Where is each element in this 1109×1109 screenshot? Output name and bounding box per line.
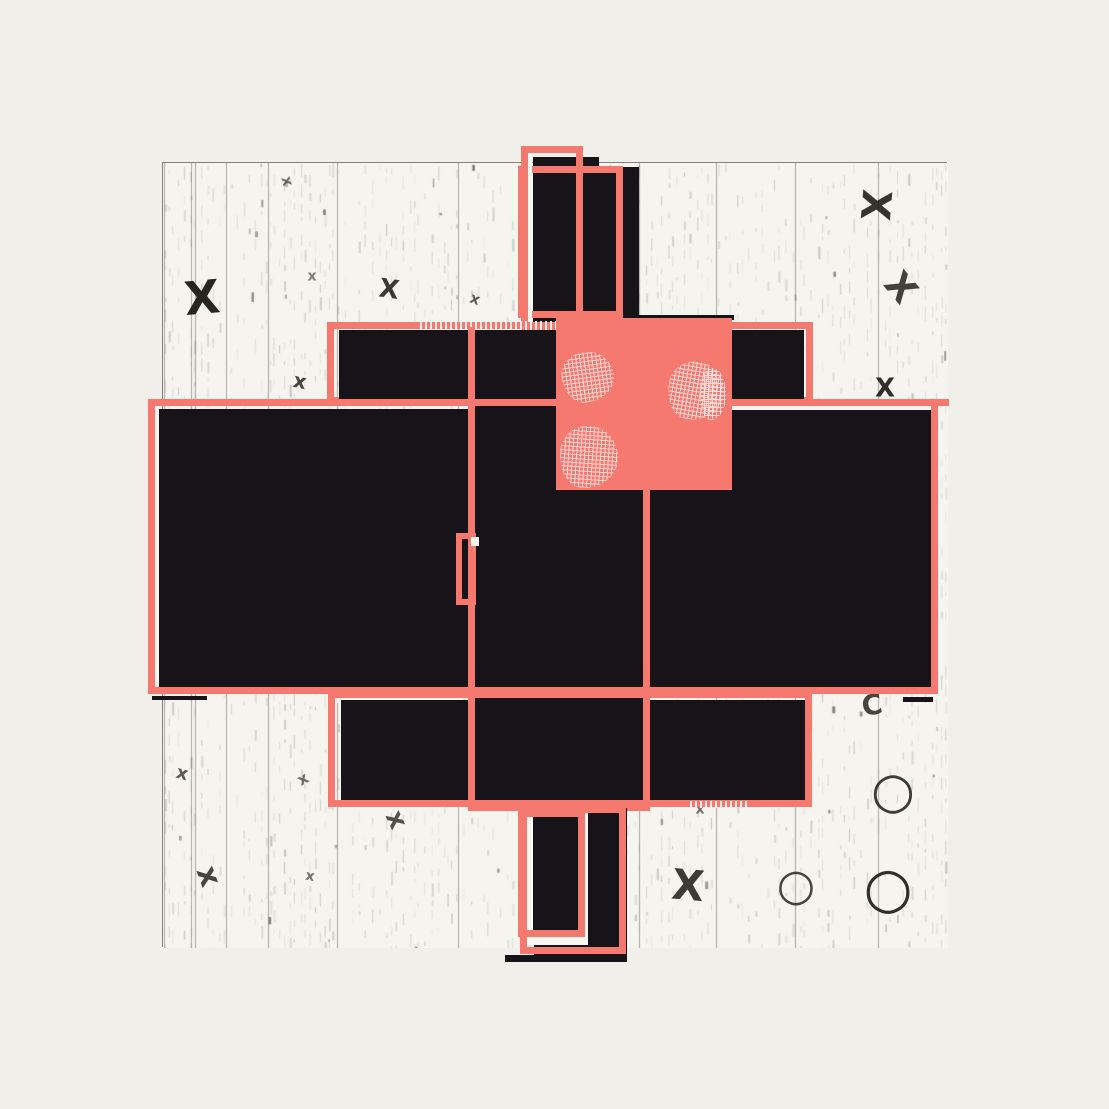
lower-band-halftone	[690, 801, 750, 808]
artwork-stage: XxxxXxXXXC○○○Xxxxxxx	[0, 0, 1109, 1109]
right-slab-shadow	[903, 697, 933, 702]
notch-white-square	[471, 537, 479, 546]
shape-layer	[0, 0, 1109, 1109]
lower-band-outline	[328, 691, 812, 807]
slab-outline	[148, 399, 938, 694]
top-outline-tall	[521, 146, 583, 330]
bottom-column-shadow	[505, 955, 627, 962]
center-column-outline-right	[643, 490, 650, 811]
bottom-outline-tall	[518, 810, 585, 937]
upper-band-halftone	[420, 321, 560, 330]
left-slab-shadow	[152, 696, 207, 700]
slab-outline-overshoot	[930, 399, 949, 406]
